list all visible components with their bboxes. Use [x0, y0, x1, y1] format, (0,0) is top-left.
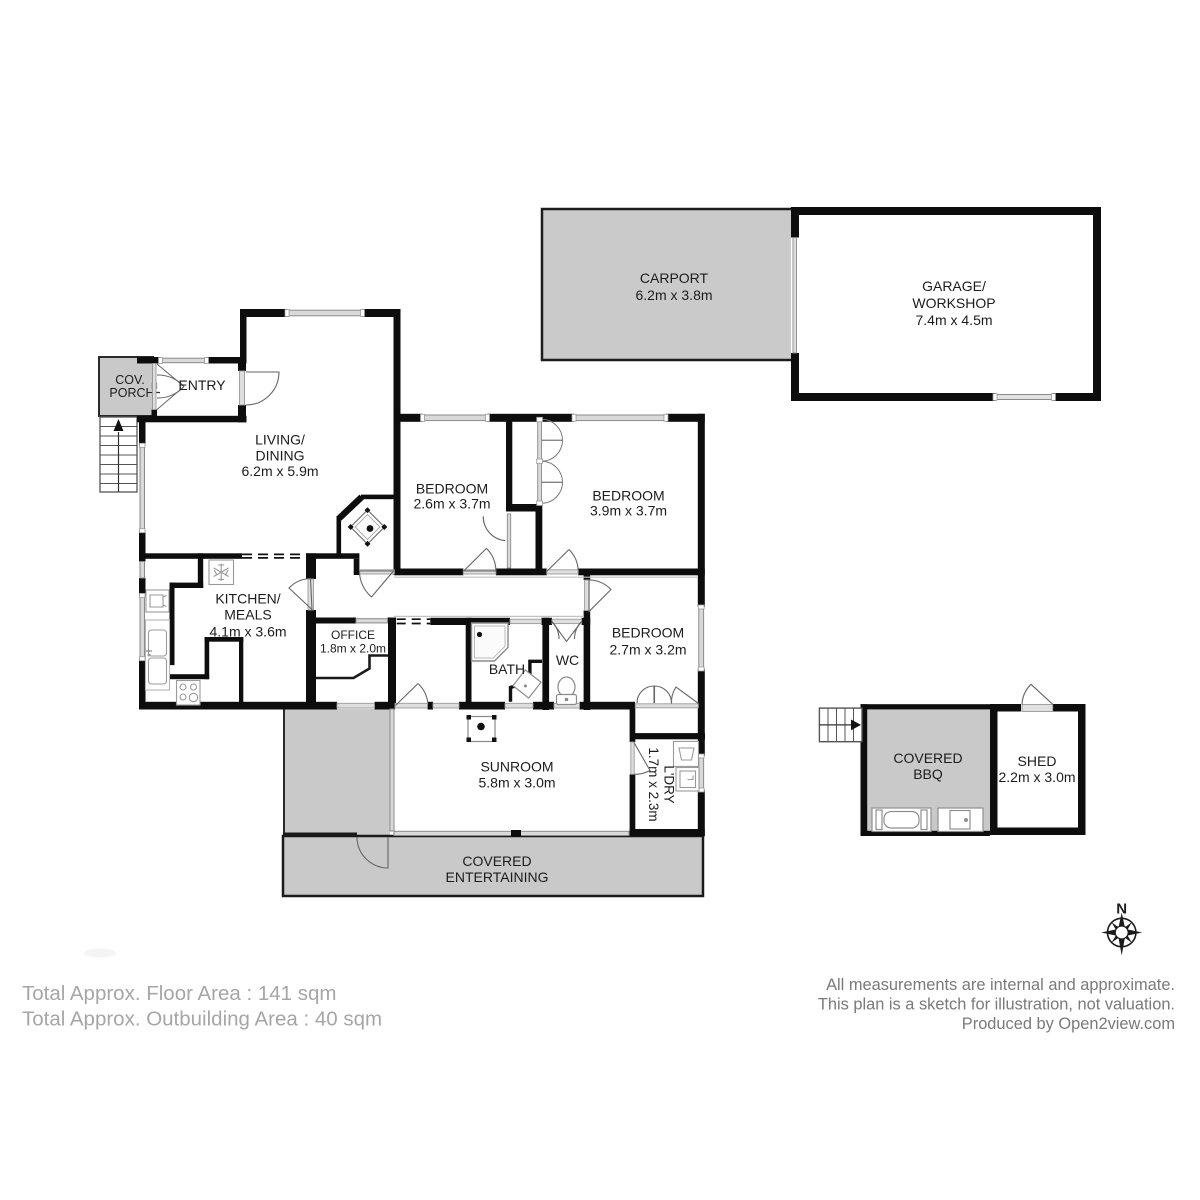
- svg-text:6.2m x 3.8m: 6.2m x 3.8m: [635, 287, 712, 303]
- svg-text:2.6m x 3.7m: 2.6m x 3.7m: [413, 496, 490, 512]
- svg-text:OFFICE: OFFICE: [331, 628, 375, 642]
- svg-text:2.2m x 3.0m: 2.2m x 3.0m: [998, 769, 1075, 785]
- svg-text:5.8m x 3.0m: 5.8m x 3.0m: [478, 775, 555, 791]
- svg-text:GARAGE/: GARAGE/: [922, 278, 986, 294]
- svg-text:WORKSHOP: WORKSHOP: [912, 295, 995, 311]
- svg-text:DINING: DINING: [256, 448, 305, 464]
- svg-text:2.7m x 3.2m: 2.7m x 3.2m: [609, 642, 686, 658]
- svg-text:WC: WC: [556, 652, 579, 668]
- svg-text:4.1m x 3.6m: 4.1m x 3.6m: [209, 624, 286, 640]
- svg-text:1.8m x 2.0m: 1.8m x 2.0m: [320, 642, 386, 656]
- svg-text:6.2m x 5.9m: 6.2m x 5.9m: [241, 463, 318, 479]
- svg-text:MEALS: MEALS: [224, 607, 271, 623]
- svg-text:BEDROOM: BEDROOM: [612, 625, 684, 641]
- svg-text:ENTRY: ENTRY: [178, 377, 226, 393]
- svg-text:BEDROOM: BEDROOM: [416, 481, 488, 497]
- svg-text:3.9m x 3.7m: 3.9m x 3.7m: [590, 503, 667, 519]
- svg-text:LIVING/: LIVING/: [255, 432, 305, 448]
- svg-text:BBQ: BBQ: [913, 766, 943, 782]
- svg-text:BEDROOM: BEDROOM: [592, 488, 664, 504]
- svg-text:7.4m x 4.5m: 7.4m x 4.5m: [915, 312, 992, 328]
- svg-text:COV.: COV.: [115, 373, 144, 387]
- svg-text:Produced by Open2view.com: Produced by Open2view.com: [962, 1015, 1175, 1033]
- svg-text:COVERED: COVERED: [893, 750, 962, 766]
- svg-text:ENTERTAINING: ENTERTAINING: [446, 869, 549, 885]
- svg-text:SHED: SHED: [1018, 753, 1057, 769]
- svg-text:L'DRY: L'DRY: [662, 765, 677, 803]
- svg-text:Total Approx. Floor Area : 141: Total Approx. Floor Area : 141 sqm: [22, 982, 337, 1005]
- svg-text:Total Approx. Outbuilding Area: Total Approx. Outbuilding Area : 40 sqm: [22, 1008, 382, 1031]
- svg-text:CARPORT: CARPORT: [640, 270, 709, 286]
- svg-text:1.7m x 2.3m: 1.7m x 2.3m: [646, 747, 661, 821]
- svg-text:KITCHEN/: KITCHEN/: [215, 591, 280, 607]
- svg-text:PORCH: PORCH: [109, 386, 154, 400]
- svg-text:SUNROOM: SUNROOM: [480, 759, 553, 775]
- svg-text:BATH: BATH: [489, 661, 525, 677]
- svg-text:This plan is a sketch for illu: This plan is a sketch for illustration, …: [818, 996, 1175, 1014]
- svg-text:All measurements are internal: All measurements are internal and approx…: [826, 976, 1175, 994]
- svg-text:COVERED: COVERED: [462, 853, 531, 869]
